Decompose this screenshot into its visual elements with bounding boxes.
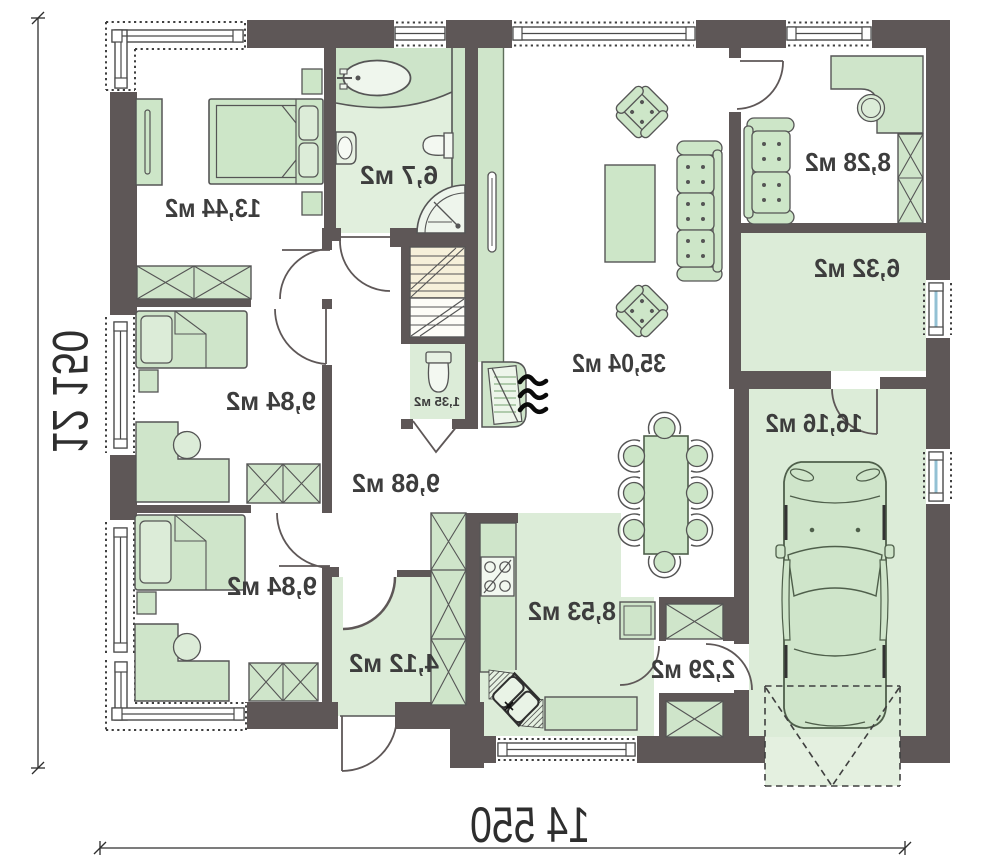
svg-text:9,68 м2: 9,68 м2	[352, 468, 440, 498]
svg-text:16,16 м2: 16,16 м2	[766, 408, 863, 438]
svg-text:6,32 м2: 6,32 м2	[814, 253, 900, 283]
svg-text:13,44 м2: 13,44 м2	[165, 193, 261, 223]
svg-text:4,12 м2: 4,12 м2	[349, 648, 439, 678]
svg-text:8,28 м2: 8,28 м2	[805, 147, 891, 177]
svg-text:2,29 м2: 2,29 м2	[651, 654, 735, 684]
svg-text:9,84 м2: 9,84 м2	[227, 571, 317, 601]
svg-text:35,04 м2: 35,04 м2	[572, 348, 666, 378]
svg-text:6,7 м2: 6,7 м2	[360, 160, 438, 190]
svg-text:14 550: 14 550	[470, 797, 590, 853]
svg-text:8,53 м2: 8,53 м2	[528, 596, 616, 626]
svg-text:9,84 м2: 9,84 м2	[226, 386, 316, 416]
svg-text:12 150: 12 150	[42, 330, 98, 454]
svg-text:1,35 м2: 1,35 м2	[414, 394, 460, 409]
